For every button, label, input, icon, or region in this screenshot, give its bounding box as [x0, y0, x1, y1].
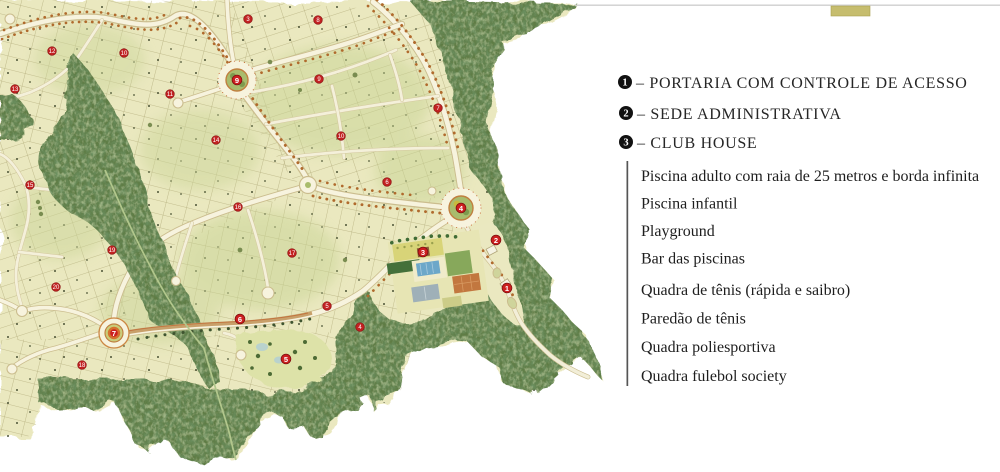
svg-text:11: 11 [167, 92, 174, 98]
svg-text:3: 3 [421, 248, 425, 257]
svg-text:10: 10 [121, 51, 128, 57]
svg-text:Bar das piscinas: Bar das piscinas [641, 251, 745, 268]
svg-text:16: 16 [235, 205, 242, 211]
svg-text:2: 2 [623, 109, 628, 120]
svg-text:5: 5 [284, 355, 288, 364]
svg-text:Piscina adulto com raia de 25: Piscina adulto com raia de 25 metros e b… [641, 168, 979, 185]
svg-text:14: 14 [213, 138, 220, 144]
svg-text:15: 15 [27, 183, 34, 189]
svg-text:13: 13 [12, 87, 19, 93]
svg-text:Piscina infantil: Piscina infantil [641, 196, 738, 213]
svg-text:Quadra poliesportiva: Quadra poliesportiva [641, 339, 776, 356]
svg-text:2: 2 [494, 236, 498, 245]
svg-text:Playground: Playground [641, 223, 715, 240]
svg-text:10: 10 [338, 134, 345, 140]
svg-text:7: 7 [112, 329, 116, 338]
svg-text:19: 19 [109, 248, 116, 254]
svg-text:Quadra de tênis (rápida e saib: Quadra de tênis (rápida e saibro) [641, 282, 850, 299]
svg-text:1: 1 [622, 78, 627, 89]
svg-text:– CLUB HOUSE: – CLUB HOUSE [636, 135, 757, 152]
svg-text:Quadra fulebol society: Quadra fulebol society [641, 368, 787, 385]
svg-text:9: 9 [235, 76, 239, 85]
svg-text:6: 6 [238, 315, 242, 324]
svg-text:Paredão de tênis: Paredão de tênis [641, 311, 746, 328]
svg-text:20: 20 [53, 285, 60, 291]
svg-text:1: 1 [505, 284, 509, 293]
svg-text:– SEDE ADMINISTRATIVA: – SEDE ADMINISTRATIVA [636, 106, 842, 123]
svg-text:3: 3 [623, 138, 628, 149]
svg-text:17: 17 [289, 251, 296, 257]
svg-text:– PORTARIA COM CONTROLE DE ACE: – PORTARIA COM CONTROLE DE ACESSO [635, 75, 968, 92]
svg-text:12: 12 [49, 49, 56, 55]
svg-text:18: 18 [79, 363, 86, 369]
